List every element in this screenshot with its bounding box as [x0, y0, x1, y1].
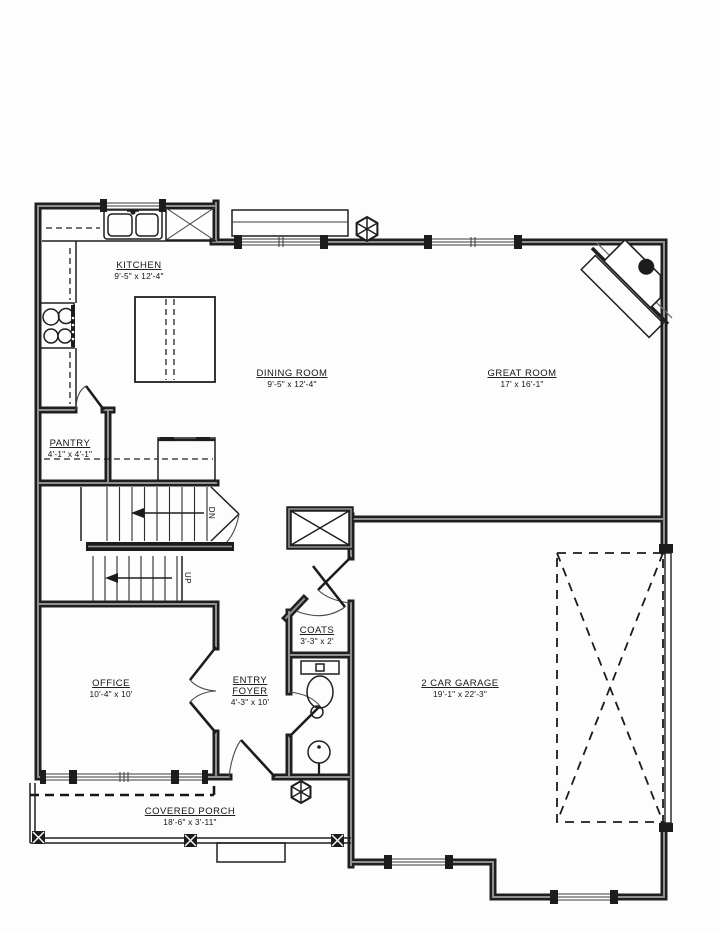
floor-plan-page: DN UP	[0, 0, 720, 932]
pantry-door	[76, 386, 104, 410]
pantry-label: PANTRY	[50, 438, 91, 449]
room-label-garage: 2 CAR GARAGE 19'-1" x 22'-3"	[421, 678, 498, 699]
room-label-dining: DINING ROOM 9'-5" x 12'-4"	[257, 368, 328, 389]
room-label-kitchen: KITCHEN 9'-5" x 12'-4"	[114, 260, 163, 281]
appliance-box	[166, 208, 214, 240]
entry-dims: 4'-3" x 10'	[231, 697, 270, 707]
porch-roof-dashed	[30, 784, 214, 795]
front-door	[229, 740, 275, 777]
office-dims: 10'-4" x 10'	[89, 689, 132, 699]
floor-plan-canvas: DN UP	[0, 0, 720, 932]
room-label-porch: COVERED PORCH 18'-6" x 3'-11"	[145, 806, 235, 827]
entry-label-line1: ENTRY	[233, 675, 268, 686]
porch-dims: 18'-6" x 3'-11"	[163, 817, 216, 827]
pantry-dims: 4'-1" x 4'-1"	[48, 449, 92, 459]
entry-label-line2: FOYER	[232, 686, 267, 697]
porch-column-1	[32, 831, 45, 844]
garage-window-left	[384, 855, 453, 869]
room-label-great: GREAT ROOM 17' x 16'-1"	[487, 368, 556, 389]
room-label-entry: ENTRY FOYER 4'-3" x 10'	[231, 675, 270, 707]
garage-window-right	[550, 890, 618, 904]
corner-fireplace	[581, 230, 688, 337]
office-window-right	[179, 770, 208, 784]
stair-down-label: DN	[207, 507, 216, 520]
ceiling-fan-symbol-porch	[292, 781, 311, 803]
porch-label: COVERED PORCH	[145, 806, 235, 817]
kitchen-label: KITCHEN	[116, 260, 161, 271]
room-label-coats: COATS 3'-3" x 2'	[300, 625, 335, 646]
rear-stoop	[232, 210, 348, 236]
coats-door	[296, 566, 345, 616]
garage-overhead-door	[557, 544, 673, 832]
toilet	[301, 661, 339, 718]
kitchen-island	[135, 297, 215, 382]
office-label: OFFICE	[92, 678, 130, 689]
pedestal-sink	[308, 741, 330, 776]
kitchen-sink	[104, 209, 162, 239]
dining-label: DINING ROOM	[257, 368, 328, 379]
chase-box	[289, 509, 351, 547]
porch-step	[217, 843, 285, 862]
powder-door	[289, 692, 320, 737]
coats-label: COATS	[300, 625, 335, 636]
windows	[40, 199, 618, 904]
rear-window-1	[234, 235, 328, 249]
garage-door-dashed-x	[557, 553, 663, 822]
stair-up-arrow: UP	[105, 572, 192, 584]
office-window-center	[69, 770, 179, 784]
room-label-office: OFFICE 10'-4" x 10'	[89, 678, 132, 699]
rear-window-2	[424, 235, 522, 249]
great-room-dims: 17' x 16'-1"	[500, 379, 543, 389]
porch-column-3	[331, 834, 344, 847]
dining-dims: 9'-5" x 12'-4"	[267, 379, 316, 389]
stair-up-label: UP	[183, 572, 192, 584]
coats-dims: 3'-3" x 2'	[300, 636, 334, 646]
stair-cabinet	[158, 437, 215, 481]
porch-column-2	[184, 834, 197, 847]
ceiling-fan-symbol-rear	[357, 217, 378, 241]
kitchen-dims: 9'-5" x 12'-4"	[114, 271, 163, 281]
office-french-doors	[190, 647, 216, 733]
office-window-left	[40, 770, 70, 784]
garage-dims: 19'-1" x 22'-3"	[433, 689, 487, 699]
great-room-label: GREAT ROOM	[487, 368, 556, 379]
stairs: DN UP	[81, 487, 239, 601]
stair-down-arrow: DN	[131, 507, 216, 520]
room-label-pantry: PANTRY 4'-1" x 4'-1"	[48, 438, 92, 459]
garage-label: 2 CAR GARAGE	[421, 678, 498, 689]
cooktop	[40, 303, 75, 348]
